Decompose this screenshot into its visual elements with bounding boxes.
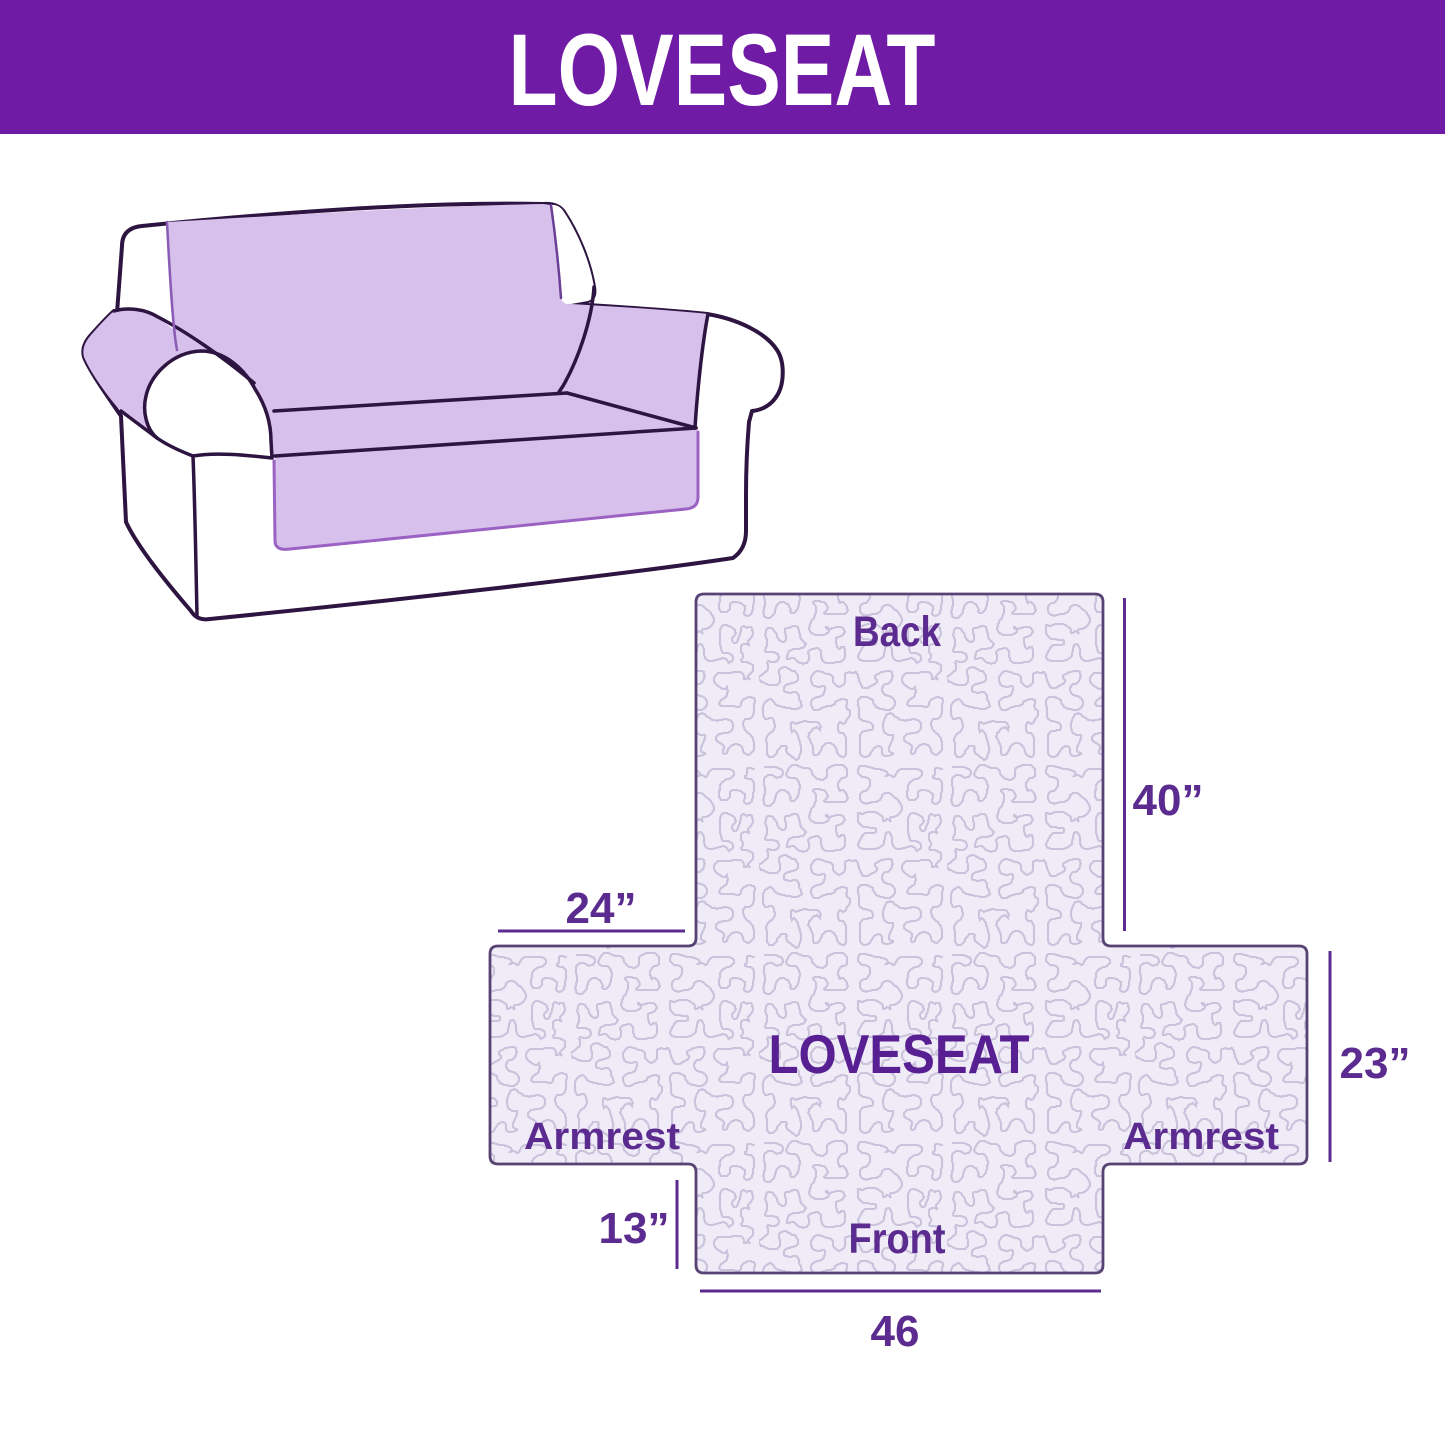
svg-text:40”: 40”: [1133, 776, 1204, 825]
svg-text:Front: Front: [849, 1215, 946, 1263]
svg-text:LOVESEAT: LOVESEAT: [769, 1023, 1030, 1085]
svg-text:24”: 24”: [566, 884, 637, 933]
svg-text:Armrest: Armrest: [1123, 1116, 1279, 1158]
svg-text:LOVESEAT: LOVESEAT: [509, 13, 936, 127]
svg-text:46: 46: [871, 1307, 920, 1356]
svg-text:Armrest: Armrest: [524, 1116, 680, 1158]
svg-text:13”: 13”: [599, 1204, 670, 1253]
svg-text:23”: 23”: [1340, 1039, 1411, 1088]
svg-text:Back: Back: [853, 608, 941, 656]
